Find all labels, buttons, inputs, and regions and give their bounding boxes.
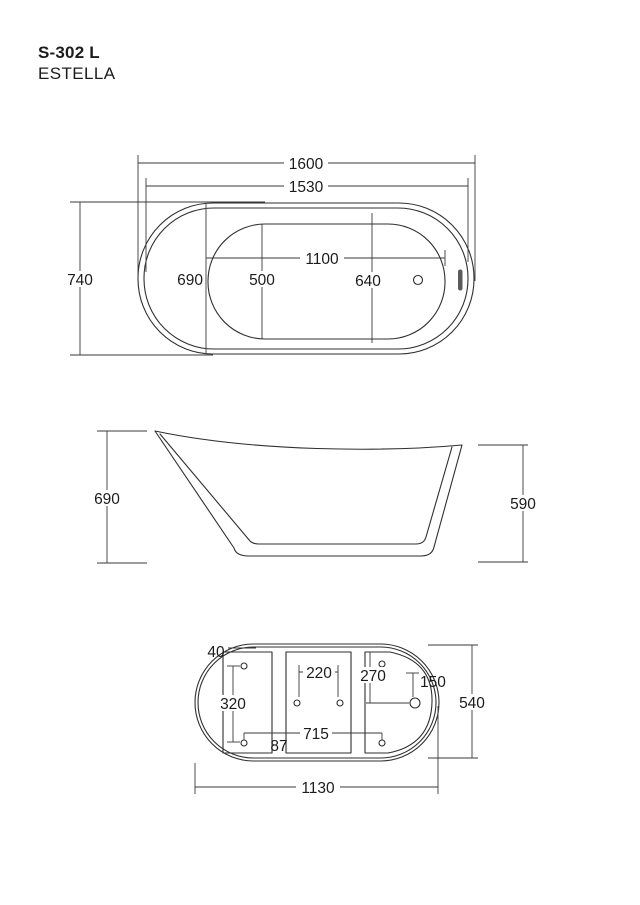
dim-label-drain-inset: 150 [420,674,446,691]
dim-label-height-back: 690 [94,491,120,508]
dim-label-basin-width: 500 [249,272,275,289]
dim-label-feet-span-across: 220 [306,665,332,682]
drain-hole [414,276,423,285]
side-view: 690 590 [91,431,539,563]
dim-label-base-length: 1130 [301,780,335,797]
foot-hole [379,740,385,746]
dim-label-feet-span-width: 320 [220,696,246,713]
bottom-view: 40 320 220 270 150 [195,644,488,797]
top-view: 1600 1530 740 690 1100 500 [64,155,475,355]
drain-outlet [410,698,420,708]
top-view-basin-outline [208,224,445,339]
foot-hole [294,700,300,706]
dim-label-base-width: 540 [459,695,485,712]
dim-label-rim-width: 690 [177,272,203,289]
dim-label-height-front: 590 [510,496,536,513]
overflow-slot [458,270,463,291]
dim-label-overall-width: 740 [67,272,93,289]
side-view-inner-profile [160,434,452,544]
dim-label-panel-gap: 87 [270,738,287,755]
dim-label-feet-span-length: 715 [303,726,329,743]
foot-hole [379,661,385,667]
dim-label-width-at-drain: 640 [355,273,381,290]
dim-label-edge-offset: 40 [207,644,225,661]
foot-hole [241,663,247,669]
foot-hole [337,700,343,706]
side-view-outer-profile [155,431,462,556]
technical-drawing: 1600 1530 740 690 1100 500 [0,0,640,905]
dim-label-drain-from-edge: 270 [360,668,386,685]
dim-label-basin-length: 1100 [305,251,339,268]
foot-hole [241,740,247,746]
drawing-page: S-302 L ESTELLA 1600 1530 [0,0,640,905]
dim-label-overall-length: 1600 [289,156,324,173]
dim-label-rim-length: 1530 [289,179,324,196]
